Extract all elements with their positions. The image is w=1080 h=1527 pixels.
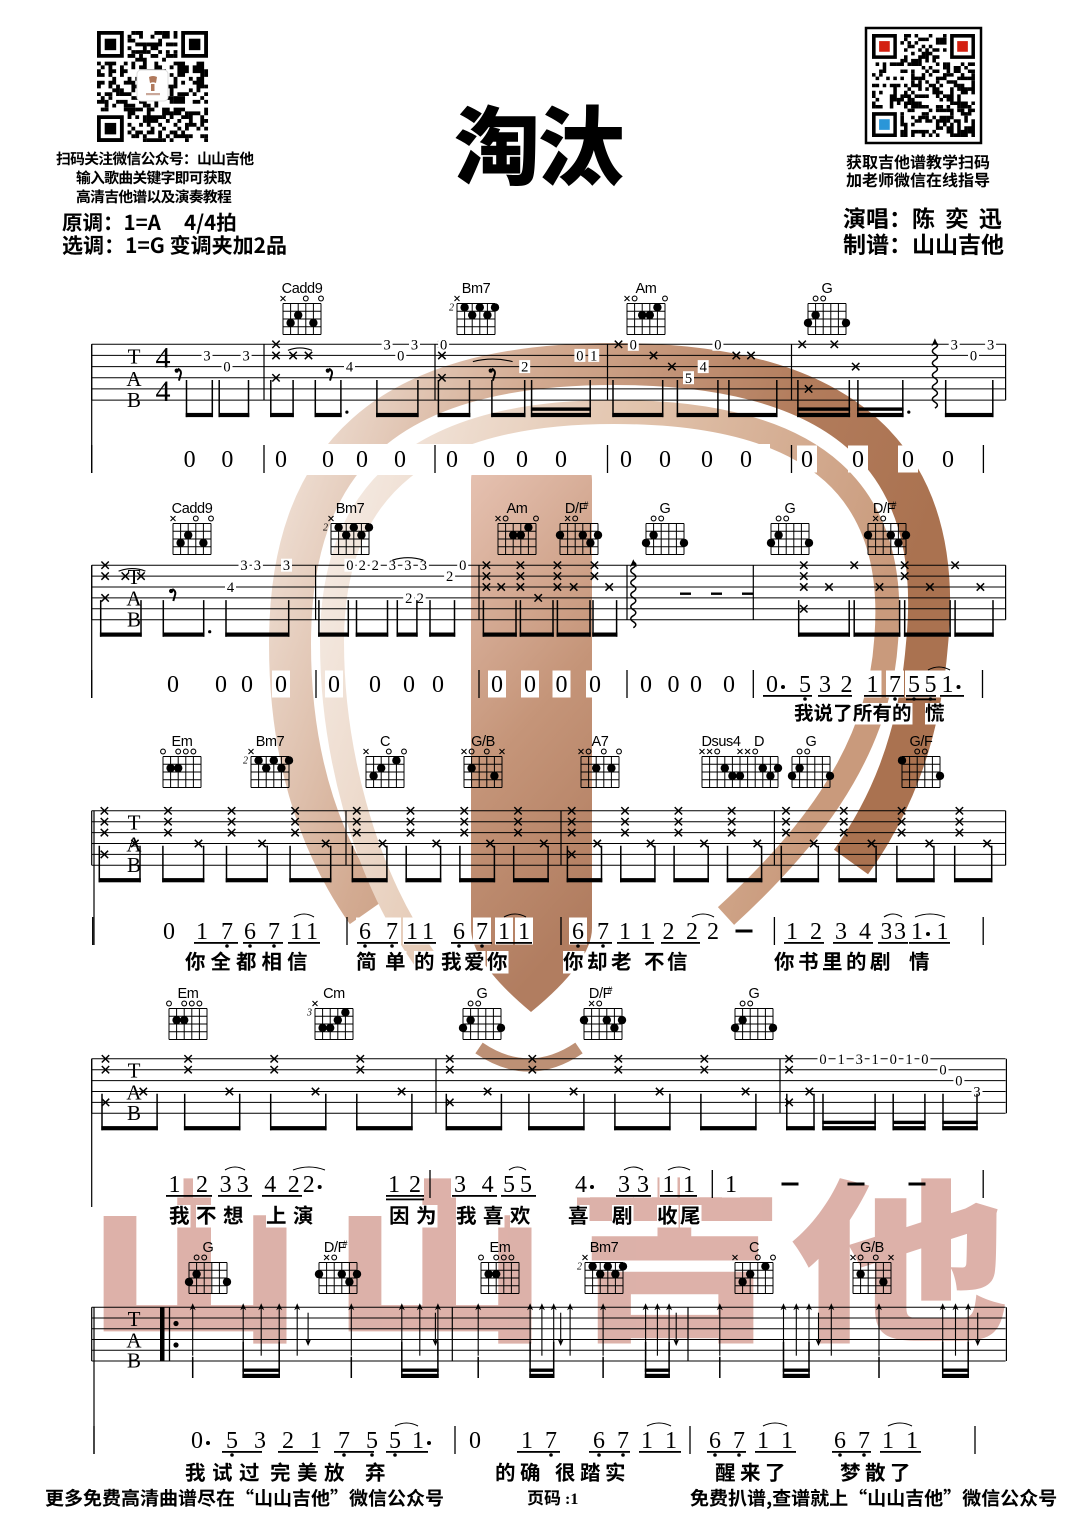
svg-text:1: 1 bbox=[867, 672, 879, 698]
svg-text:3: 3 bbox=[237, 1172, 249, 1198]
svg-text:2: 2 bbox=[282, 1428, 294, 1454]
svg-text:0: 0 bbox=[576, 348, 583, 364]
svg-text:1: 1 bbox=[388, 1172, 400, 1198]
svg-text:6: 6 bbox=[244, 919, 256, 945]
svg-text:2: 2 bbox=[323, 523, 328, 534]
svg-text:3: 3 bbox=[881, 919, 893, 945]
svg-text:4: 4 bbox=[156, 342, 171, 375]
svg-text:D: D bbox=[754, 734, 764, 750]
svg-text:6: 6 bbox=[834, 1428, 846, 1454]
svg-text:1: 1 bbox=[406, 919, 418, 945]
svg-text:7: 7 bbox=[476, 919, 488, 945]
svg-text:G: G bbox=[749, 986, 760, 1002]
svg-text:2: 2 bbox=[409, 1172, 421, 1198]
svg-text:3: 3 bbox=[404, 558, 411, 574]
svg-text:2: 2 bbox=[810, 919, 822, 945]
svg-text:0: 0 bbox=[740, 447, 752, 473]
svg-text:0: 0 bbox=[801, 447, 813, 473]
svg-text:1: 1 bbox=[641, 1428, 653, 1454]
svg-text:0: 0 bbox=[890, 1052, 897, 1068]
svg-text:4: 4 bbox=[346, 360, 354, 376]
svg-text:1: 1 bbox=[665, 1428, 677, 1454]
svg-text:1: 1 bbox=[911, 919, 923, 945]
svg-text:5: 5 bbox=[925, 672, 937, 698]
svg-text:C: C bbox=[749, 1240, 759, 1256]
svg-text:3: 3 bbox=[856, 1052, 863, 1068]
svg-text:B: B bbox=[127, 853, 141, 877]
svg-text:5: 5 bbox=[226, 1428, 238, 1454]
svg-text:A7: A7 bbox=[592, 734, 609, 750]
svg-text:0: 0 bbox=[714, 337, 721, 353]
svg-text:7: 7 bbox=[221, 919, 233, 945]
svg-text:5: 5 bbox=[389, 1428, 401, 1454]
svg-text:1: 1 bbox=[521, 1428, 533, 1454]
svg-text:1: 1 bbox=[905, 1052, 912, 1068]
svg-text:0: 0 bbox=[191, 1428, 203, 1454]
svg-text:0: 0 bbox=[440, 337, 447, 353]
svg-text:1: 1 bbox=[290, 919, 302, 945]
svg-text:0: 0 bbox=[766, 672, 778, 698]
svg-text:4: 4 bbox=[575, 1172, 587, 1198]
svg-text:G: G bbox=[477, 986, 488, 1002]
svg-text:Em: Em bbox=[178, 986, 199, 1002]
svg-text:2: 2 bbox=[686, 919, 698, 945]
svg-text:T: T bbox=[128, 1059, 141, 1083]
svg-text:Bm7: Bm7 bbox=[256, 734, 285, 750]
svg-text:1: 1 bbox=[906, 1428, 918, 1454]
svg-text:3: 3 bbox=[420, 558, 427, 574]
svg-text:0: 0 bbox=[819, 1052, 826, 1068]
svg-text:0: 0 bbox=[221, 447, 233, 473]
svg-text:3: 3 bbox=[894, 919, 906, 945]
svg-text:3: 3 bbox=[454, 1172, 466, 1198]
svg-text:4: 4 bbox=[482, 1172, 494, 1198]
svg-text:0: 0 bbox=[723, 672, 735, 698]
svg-text:2: 2 bbox=[577, 1262, 582, 1273]
svg-text:3: 3 bbox=[951, 337, 958, 353]
svg-text:0: 0 bbox=[556, 672, 568, 698]
svg-text:0: 0 bbox=[939, 1063, 946, 1079]
svg-text:1: 1 bbox=[590, 348, 597, 364]
svg-text:0: 0 bbox=[620, 447, 632, 473]
svg-text:G/B: G/B bbox=[471, 734, 495, 750]
svg-text:2: 2 bbox=[707, 919, 719, 945]
svg-text:Dsus4: Dsus4 bbox=[701, 734, 740, 750]
svg-text:2: 2 bbox=[405, 591, 412, 607]
svg-text:0: 0 bbox=[921, 1052, 928, 1068]
svg-text:0: 0 bbox=[322, 447, 334, 473]
svg-text:0: 0 bbox=[955, 1074, 962, 1090]
svg-text:3: 3 bbox=[411, 337, 418, 353]
svg-text:Em: Em bbox=[490, 1240, 511, 1256]
svg-text:7: 7 bbox=[268, 919, 280, 945]
svg-text:1: 1 bbox=[882, 1428, 894, 1454]
svg-text:6: 6 bbox=[453, 919, 465, 945]
svg-text:2: 2 bbox=[372, 558, 379, 574]
svg-text:0: 0 bbox=[690, 672, 702, 698]
svg-text:0: 0 bbox=[524, 672, 536, 698]
svg-text:G/B: G/B bbox=[860, 1240, 884, 1256]
svg-text:6: 6 bbox=[709, 1428, 721, 1454]
svg-text:Em: Em bbox=[172, 734, 193, 750]
svg-text:0: 0 bbox=[970, 348, 977, 364]
svg-text:3: 3 bbox=[283, 558, 290, 574]
svg-text:#: # bbox=[891, 500, 896, 510]
svg-text:5: 5 bbox=[520, 1172, 532, 1198]
svg-text:Am: Am bbox=[636, 281, 657, 297]
svg-text:0: 0 bbox=[852, 447, 864, 473]
svg-text:3: 3 bbox=[306, 1008, 312, 1019]
svg-text:0: 0 bbox=[469, 1428, 481, 1454]
svg-text:1: 1 bbox=[663, 1172, 675, 1198]
svg-text:Bm7: Bm7 bbox=[590, 1240, 619, 1256]
svg-text:0: 0 bbox=[403, 672, 415, 698]
svg-text:1: 1 bbox=[412, 1428, 424, 1454]
svg-text:3: 3 bbox=[240, 558, 247, 574]
svg-text:7: 7 bbox=[386, 919, 398, 945]
svg-text:7: 7 bbox=[545, 1428, 557, 1454]
svg-text:1: 1 bbox=[619, 919, 631, 945]
svg-text:2: 2 bbox=[288, 1172, 300, 1198]
svg-text:2: 2 bbox=[359, 558, 366, 574]
svg-text:7: 7 bbox=[733, 1428, 745, 1454]
svg-text:5: 5 bbox=[908, 672, 920, 698]
svg-text:3: 3 bbox=[203, 348, 210, 364]
svg-text:3: 3 bbox=[835, 919, 847, 945]
svg-text:0: 0 bbox=[369, 672, 381, 698]
svg-text:1: 1 bbox=[781, 1428, 793, 1454]
svg-text:T: T bbox=[128, 345, 141, 369]
svg-text:1: 1 bbox=[498, 919, 510, 945]
svg-text:4: 4 bbox=[859, 919, 871, 945]
svg-text:0: 0 bbox=[902, 447, 914, 473]
svg-text:2: 2 bbox=[449, 303, 454, 314]
svg-text:B: B bbox=[127, 388, 141, 412]
svg-text:Am: Am bbox=[507, 501, 528, 517]
svg-text:5: 5 bbox=[685, 371, 692, 387]
svg-text:1: 1 bbox=[725, 1172, 737, 1198]
svg-text:0: 0 bbox=[223, 360, 230, 376]
svg-text:0: 0 bbox=[459, 558, 466, 574]
svg-text:0: 0 bbox=[346, 558, 353, 574]
svg-text:3: 3 bbox=[389, 558, 396, 574]
svg-text:6: 6 bbox=[572, 919, 584, 945]
svg-text:1: 1 bbox=[306, 919, 318, 945]
svg-text:0: 0 bbox=[942, 447, 954, 473]
svg-text:7: 7 bbox=[597, 919, 609, 945]
svg-text:1: 1 bbox=[422, 919, 434, 945]
svg-text:0: 0 bbox=[356, 447, 368, 473]
svg-text:0: 0 bbox=[275, 672, 287, 698]
svg-text:0: 0 bbox=[184, 447, 196, 473]
svg-text:3: 3 bbox=[618, 1172, 630, 1198]
svg-text:3: 3 bbox=[383, 337, 390, 353]
svg-text:2: 2 bbox=[196, 1172, 208, 1198]
svg-text:2: 2 bbox=[521, 360, 528, 376]
svg-text:0: 0 bbox=[555, 447, 567, 473]
svg-text:2: 2 bbox=[841, 672, 853, 698]
svg-text:1: 1 bbox=[942, 672, 954, 698]
svg-text:0: 0 bbox=[589, 672, 601, 698]
svg-text:T: T bbox=[128, 1307, 141, 1331]
svg-text:4: 4 bbox=[156, 375, 171, 408]
svg-text:0: 0 bbox=[328, 672, 340, 698]
svg-text:4: 4 bbox=[700, 360, 708, 376]
svg-text:5: 5 bbox=[366, 1428, 378, 1454]
svg-text:0: 0 bbox=[701, 447, 713, 473]
svg-text:0: 0 bbox=[167, 672, 179, 698]
svg-text:Cadd9: Cadd9 bbox=[282, 281, 323, 297]
svg-text:G: G bbox=[822, 281, 833, 297]
svg-text:0: 0 bbox=[215, 672, 227, 698]
svg-text:1: 1 bbox=[683, 1172, 695, 1198]
svg-text:0: 0 bbox=[668, 672, 680, 698]
svg-text:1: 1 bbox=[757, 1428, 769, 1454]
svg-text:3: 3 bbox=[242, 348, 249, 364]
svg-text:2: 2 bbox=[446, 569, 453, 585]
svg-text:2: 2 bbox=[663, 919, 675, 945]
svg-text:0: 0 bbox=[491, 672, 503, 698]
svg-text:3: 3 bbox=[254, 1428, 266, 1454]
svg-text:0: 0 bbox=[275, 447, 287, 473]
svg-text:1: 1 bbox=[871, 1052, 878, 1068]
svg-text:1: 1 bbox=[169, 1172, 181, 1198]
svg-text:0: 0 bbox=[163, 919, 175, 945]
svg-text:7: 7 bbox=[617, 1428, 629, 1454]
svg-text:1: 1 bbox=[518, 919, 530, 945]
svg-text:6: 6 bbox=[359, 919, 371, 945]
svg-text:7: 7 bbox=[338, 1428, 350, 1454]
svg-text:0: 0 bbox=[241, 672, 253, 698]
svg-text:0: 0 bbox=[483, 447, 495, 473]
svg-text:B: B bbox=[127, 1349, 141, 1373]
svg-text:4: 4 bbox=[227, 580, 235, 596]
svg-text:1: 1 bbox=[196, 919, 208, 945]
svg-text:3: 3 bbox=[220, 1172, 232, 1198]
svg-text:3: 3 bbox=[987, 337, 994, 353]
svg-text:B: B bbox=[127, 1101, 141, 1125]
svg-text:T: T bbox=[128, 811, 141, 835]
svg-text:0: 0 bbox=[640, 672, 652, 698]
svg-text:0: 0 bbox=[630, 337, 637, 353]
svg-text:2: 2 bbox=[243, 756, 248, 767]
svg-text:5: 5 bbox=[799, 672, 811, 698]
svg-text:1: 1 bbox=[640, 919, 652, 945]
svg-text:1: 1 bbox=[837, 1052, 844, 1068]
svg-text:#: # bbox=[583, 500, 588, 510]
svg-text:6: 6 bbox=[593, 1428, 605, 1454]
svg-text:#: # bbox=[342, 1239, 347, 1249]
svg-text:7: 7 bbox=[858, 1428, 870, 1454]
svg-text:G/F: G/F bbox=[910, 734, 934, 750]
svg-text:7: 7 bbox=[889, 672, 901, 698]
svg-text:0: 0 bbox=[446, 447, 458, 473]
svg-text:2: 2 bbox=[303, 1172, 315, 1198]
svg-text:G: G bbox=[660, 501, 671, 517]
svg-text:3: 3 bbox=[254, 558, 261, 574]
svg-text:#: # bbox=[607, 985, 612, 995]
svg-text:1: 1 bbox=[937, 919, 949, 945]
svg-text:0: 0 bbox=[516, 447, 528, 473]
svg-text:4: 4 bbox=[264, 1172, 276, 1198]
svg-text:1: 1 bbox=[310, 1428, 322, 1454]
svg-text:1: 1 bbox=[786, 919, 798, 945]
svg-text:0: 0 bbox=[659, 447, 671, 473]
svg-text:Cadd9: Cadd9 bbox=[172, 501, 213, 517]
svg-text:G: G bbox=[806, 734, 817, 750]
svg-text:0: 0 bbox=[394, 447, 406, 473]
svg-text:Bm7: Bm7 bbox=[336, 501, 365, 517]
svg-text:5: 5 bbox=[503, 1172, 515, 1198]
svg-text:0: 0 bbox=[432, 672, 444, 698]
svg-text:G: G bbox=[785, 501, 796, 517]
svg-text:Bm7: Bm7 bbox=[462, 281, 491, 297]
svg-text:2: 2 bbox=[417, 591, 424, 607]
svg-text:G: G bbox=[203, 1240, 214, 1256]
svg-text:Cm: Cm bbox=[323, 986, 345, 1002]
svg-text:3: 3 bbox=[819, 672, 831, 698]
svg-text:C: C bbox=[380, 734, 390, 750]
svg-text:3: 3 bbox=[637, 1172, 649, 1198]
svg-text::1: :1 bbox=[565, 1491, 578, 1508]
svg-text:B: B bbox=[127, 608, 141, 632]
svg-text:0: 0 bbox=[397, 348, 404, 364]
